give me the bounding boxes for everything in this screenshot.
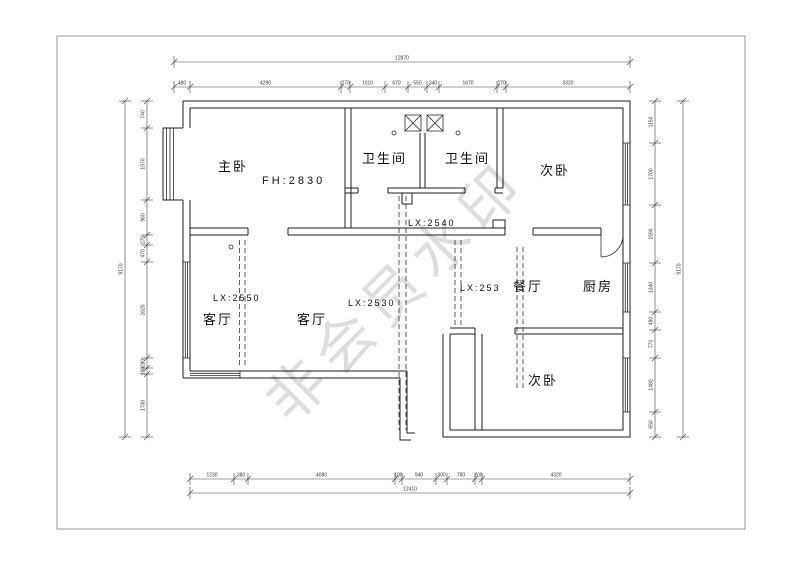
dimension-value: 3320 <box>562 81 573 87</box>
fixture-circle-icon <box>229 245 233 249</box>
dimension-value: 1590 <box>649 228 655 239</box>
dimension-value: 270 <box>497 81 506 87</box>
dimension-chain-left-segments: 740197096027047026202801601700 <box>141 98 154 440</box>
dimension-value: 4320 <box>550 473 561 479</box>
dimension-value: 9170 <box>677 263 683 274</box>
room-label-bedroom-bottom: 次卧 <box>528 373 558 388</box>
bedroom-top-window-icon <box>623 143 630 205</box>
living-window-icon <box>183 262 190 358</box>
dimension-value: 770 <box>649 340 655 349</box>
dimension-chain-right-segments: 11501700159013404907701480650 <box>649 98 662 440</box>
dimension-value: 200 <box>474 473 483 479</box>
lx-2540-label: LX:2540 <box>408 218 456 228</box>
kitchen-door-arc-icon <box>601 235 623 257</box>
dimension-value: 280 <box>141 359 147 368</box>
dimension-value: 1970 <box>141 158 147 169</box>
dimension-value: 4080 <box>316 473 327 479</box>
room-label-living-2: 客厅 <box>297 312 327 327</box>
dimension-value: 340 <box>429 81 438 87</box>
living-bottom-window-icon <box>190 371 240 378</box>
dimension-value: 270 <box>341 81 350 87</box>
dimension-value: 180 <box>394 473 403 479</box>
dimension-value: 1480 <box>649 379 655 390</box>
dimension-value: 1670 <box>462 81 473 87</box>
dimension-chain-left-total: 9170 <box>119 98 132 440</box>
dimension-value: 490 <box>649 317 655 326</box>
dimension-chain-bottom-total: 12410 <box>187 487 633 500</box>
dimension-value: 270 <box>141 236 147 245</box>
floor-height-label: FH:2830 <box>262 175 325 187</box>
dimension-chain-right-total: 9170 <box>677 98 690 440</box>
dimension-value: 12870 <box>395 56 409 62</box>
doors <box>601 235 623 257</box>
dimension-value: 1230 <box>206 473 217 479</box>
room-label-living-1: 客厅 <box>203 312 233 327</box>
dimension-chain-top-total: 12870 <box>171 56 633 69</box>
dimension-value: 960 <box>141 213 147 222</box>
dimension-chain-bottom-segments: 123038040801809403007802004320 <box>187 473 633 486</box>
dimension-value: 12410 <box>403 487 417 493</box>
floor-plan-canvas: 非会员水印 <box>0 0 800 565</box>
flue-shafts <box>405 115 443 131</box>
dimension-value: 9170 <box>119 263 125 274</box>
lx-253-label: LX:253 <box>460 283 501 293</box>
dimension-value: 160 <box>141 367 147 376</box>
dimension-value: 4290 <box>260 81 271 87</box>
bay-window-icon <box>167 128 174 200</box>
room-label-dining: 餐厅 <box>513 279 543 294</box>
lx-2530-label: LX:2530 <box>348 298 396 308</box>
dimension-value: 740 <box>141 110 147 119</box>
dimension-value: 380 <box>237 473 246 479</box>
fixture-circle-icon <box>456 131 460 135</box>
dimension-value: 650 <box>649 420 655 429</box>
kitchen-window-icon <box>623 263 630 312</box>
room-label-bath2: 卫生间 <box>445 151 490 166</box>
lx-2550-label: LX:2550 <box>213 293 261 303</box>
dimension-value: 480 <box>178 81 187 87</box>
room-label-kitchen: 厨房 <box>583 279 613 294</box>
dimension-value: 300 <box>437 473 446 479</box>
dimension-value: 1700 <box>141 400 147 411</box>
dimension-value: 940 <box>415 473 424 479</box>
dimension-value: 470 <box>141 249 147 258</box>
dimension-value: 1700 <box>649 168 655 179</box>
fixture-circle-icon <box>392 131 396 135</box>
dimension-value: 1340 <box>649 282 655 293</box>
bedroom-bottom-window-icon <box>623 358 630 412</box>
dimension-value: 1150 <box>649 116 655 127</box>
dimension-value: 2620 <box>141 304 147 315</box>
dimension-value: 780 <box>457 473 466 479</box>
room-label-master: 主卧 <box>218 159 248 174</box>
room-label-bath1: 卫生间 <box>362 151 407 166</box>
dimension-value: 1010 <box>362 81 373 87</box>
room-label-bedroom-top: 次卧 <box>540 163 570 178</box>
dimension-value: 550 <box>413 81 422 87</box>
dimension-chain-top-segments: 4804290270101067055034016702703320 <box>171 81 633 94</box>
floorplan-page: 非会员水印 <box>0 0 800 565</box>
dimension-value: 670 <box>392 81 401 87</box>
